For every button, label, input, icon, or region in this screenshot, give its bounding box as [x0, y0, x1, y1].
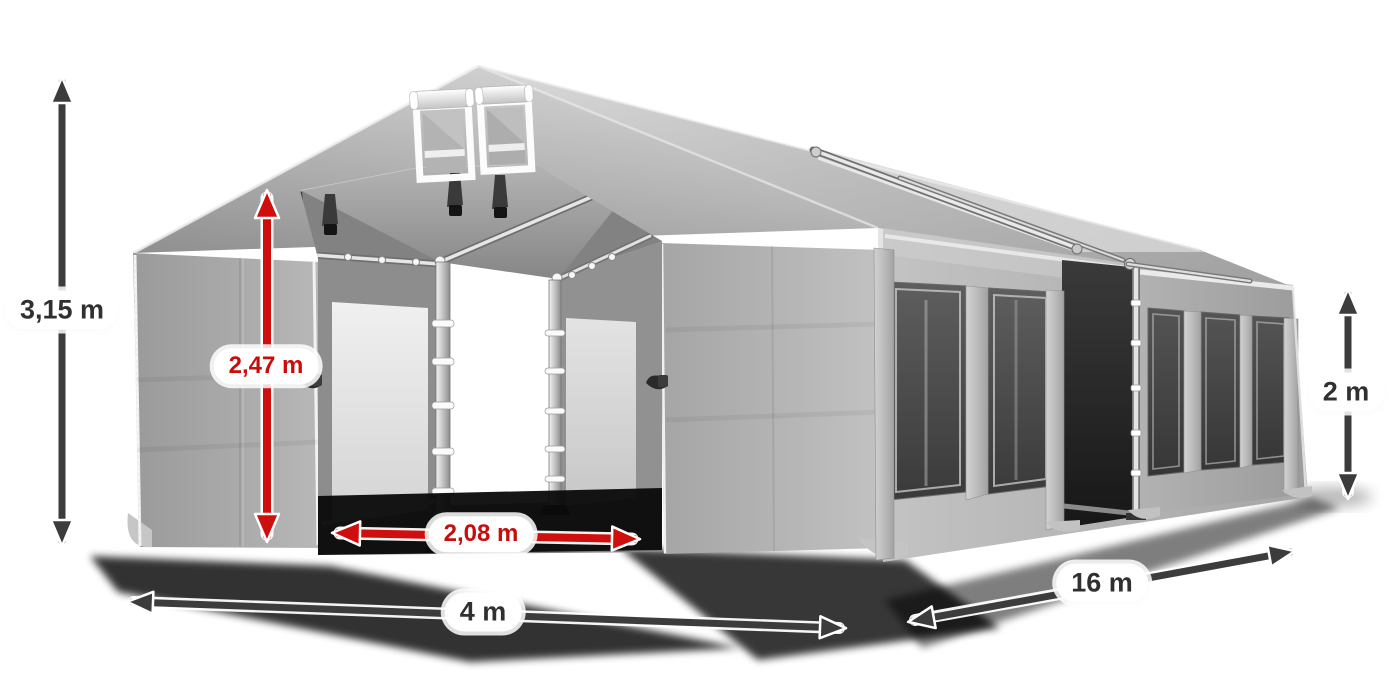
- side-wall: [878, 228, 1312, 562]
- front-right-door-wing: [660, 243, 908, 558]
- tent-drawing: [0, 0, 1400, 700]
- dimension-label-front-width: 4 m: [445, 592, 522, 631]
- corner-sleeve: [874, 248, 894, 560]
- side-window-far: [1148, 308, 1289, 476]
- side-entrance-opening: [1062, 260, 1140, 528]
- dimension-label-door-width: 2,08 m: [429, 516, 534, 552]
- dimension-label-side-wall-height: 2 m: [1308, 372, 1385, 411]
- dimension-label-side-length: 16 m: [1056, 563, 1148, 602]
- tent-product-illustration: 3,15 m 2,47 m 2,08 m 4 m 16 m 2 m: [0, 0, 1400, 700]
- dimension-label-door-height: 2,47 m: [214, 348, 319, 384]
- dimension-label-total-height: 3,15 m: [5, 290, 119, 329]
- front-door-opening: [289, 160, 670, 560]
- interior-mesh-panel-right: [566, 318, 636, 506]
- interior-mesh-panel-left: [332, 302, 428, 524]
- front-left-panel: [128, 253, 319, 548]
